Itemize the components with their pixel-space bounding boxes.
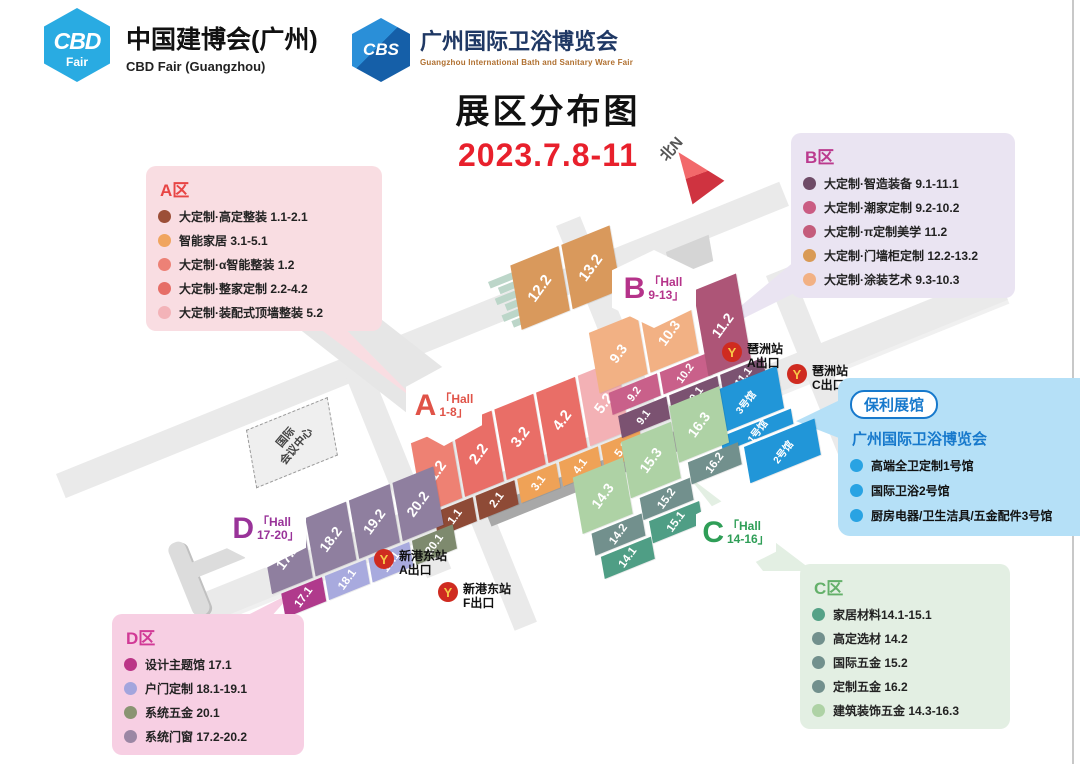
legend-dot: [803, 177, 816, 190]
legend-item: 国际卫浴2号馆: [850, 482, 1080, 499]
legend-title: D区: [126, 624, 292, 649]
legend-dot: [158, 258, 171, 271]
legend-dot: [803, 225, 816, 238]
legend-item: 大定制·整家定制 2.2-4.2: [158, 280, 370, 297]
cbs-logo: CBS: [352, 18, 410, 82]
legend-dot: [812, 608, 825, 621]
legend-item: 户门定制 18.1-19.1: [124, 680, 292, 697]
poly-pavilion-tag: 保利展馆: [850, 390, 938, 419]
legend-dot: [158, 234, 171, 247]
cbs-fair-title: 广州国际卫浴博览会: [420, 24, 633, 56]
legend-item: 大定制·潮家定制 9.2-10.2: [803, 199, 1003, 216]
legend-item: 系统五金 20.1: [124, 704, 292, 721]
legend-dot: [812, 632, 825, 645]
legend-dot: [850, 459, 863, 472]
legend-title: B区: [805, 143, 1003, 168]
exhibition-map-page: CBD Fair 中国建博会(广州) CBD Fair (Guangzhou) …: [0, 0, 1080, 764]
event-date: 2023.7.8-11: [408, 137, 688, 174]
legend-item: 大定制·装配式顶墙整装 5.2: [158, 304, 370, 321]
metro-y-icon: Y: [787, 364, 807, 384]
legend-item: 国际五金 15.2: [812, 654, 998, 671]
cbd-logo-subtext: Fair: [44, 55, 110, 69]
legend-dot: [124, 682, 137, 695]
legend-item: 高端全卫定制1号馆: [850, 457, 1080, 474]
legend-item: 大定制·α智能整装 1.2: [158, 256, 370, 273]
legend-dot: [803, 201, 816, 214]
legend-item: 设计主题馆 17.1: [124, 656, 292, 673]
legend-item: 大定制·门墙柜定制 12.2-13.2: [803, 247, 1003, 264]
legend-item: 大定制·π定制美学 11.2: [803, 223, 1003, 240]
legend-item: 定制五金 16.2: [812, 678, 998, 695]
legend-title: C区: [814, 574, 998, 599]
page-title: 展区分布图: [408, 84, 688, 133]
legend-item: 大定制·涂装艺术 9.3-10.3: [803, 271, 1003, 288]
legend-zone-d: D区 设计主题馆 17.1 户门定制 18.1-19.1 系统五金 20.1 系…: [112, 614, 304, 755]
legend-item: 大定制·高定整装 1.1-2.1: [158, 208, 370, 225]
legend-dot: [812, 656, 825, 669]
metro-y-icon: Y: [722, 342, 742, 362]
legend-item: 大定制·智造装备 9.1-11.1: [803, 175, 1003, 192]
legend-dot: [850, 484, 863, 497]
legend-item: 建筑装饰五金 14.3-16.3: [812, 702, 998, 719]
metro-exit-marker: Y 新港东站F出口: [438, 582, 511, 611]
legend-title: A区: [160, 176, 370, 201]
metro-exit-marker: Y 琶洲站A出口: [722, 342, 783, 371]
legend-dot: [124, 658, 137, 671]
cbd-fair-subtitle: CBD Fair (Guangzhou): [126, 59, 318, 74]
cbd-fair-title: 中国建博会(广州): [126, 20, 318, 56]
legend-dot: [124, 730, 137, 743]
legend-dot: [158, 210, 171, 223]
legend-item: 家居材料14.1-15.1: [812, 606, 998, 623]
hall-tile: 12.2: [510, 246, 570, 330]
legend-dot: [158, 306, 171, 319]
legend-dot: [124, 706, 137, 719]
cbs-fair-subtitle: Guangzhou International Bath and Sanitar…: [420, 58, 633, 67]
poly-pavilion-callout: 保利展馆 广州国际卫浴博览会 高端全卫定制1号馆 国际卫浴2号馆 厨房电器/卫生…: [838, 378, 1080, 536]
legend-dot: [812, 704, 825, 717]
legend-item: 厨房电器/卫生洁具/五金配件3号馆: [850, 507, 1080, 524]
legend-zone-a: A区 大定制·高定整装 1.1-2.1 智能家居 3.1-5.1 大定制·α智能…: [146, 166, 382, 331]
poly-pavilion-title: 广州国际卫浴博览会: [852, 428, 1080, 449]
legend-dot: [812, 680, 825, 693]
cbd-fair-logo: CBD Fair: [44, 8, 110, 82]
cbd-logo-text: CBD: [44, 28, 110, 55]
legend-zone-b: B区 大定制·智造装备 9.1-11.1 大定制·潮家定制 9.2-10.2 大…: [791, 133, 1015, 298]
cbs-logo-text: CBS: [363, 40, 399, 60]
legend-dot: [158, 282, 171, 295]
legend-dot: [803, 273, 816, 286]
legend-zone-c: C区 家居材料14.1-15.1 高定选材 14.2 国际五金 15.2 定制五…: [800, 564, 1010, 729]
legend-item: 智能家居 3.1-5.1: [158, 232, 370, 249]
legend-dot: [803, 249, 816, 262]
metro-exit-marker: Y 新港东站A出口: [374, 549, 447, 578]
metro-y-icon: Y: [374, 549, 394, 569]
metro-y-icon: Y: [438, 582, 458, 602]
legend-item: 系统门窗 17.2-20.2: [124, 728, 292, 745]
legend-dot: [850, 509, 863, 522]
legend-item: 高定选材 14.2: [812, 630, 998, 647]
